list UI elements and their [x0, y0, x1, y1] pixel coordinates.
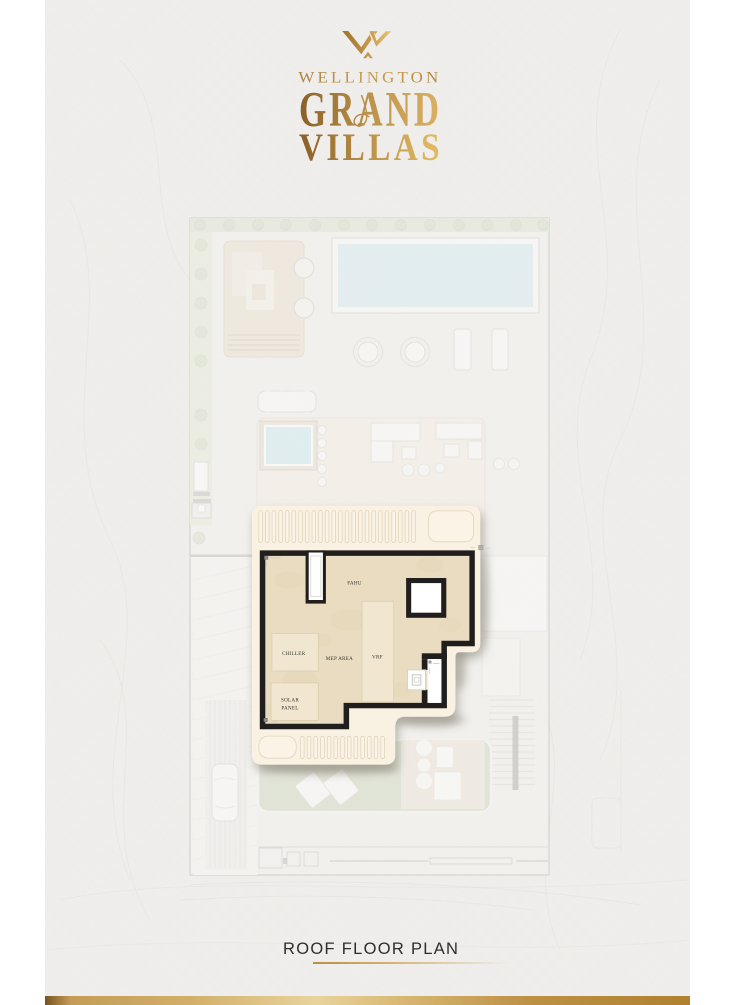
svg-text:CHILLER: CHILLER [282, 651, 306, 657]
svg-text:SOLAR: SOLAR [281, 698, 299, 704]
svg-text:VRF: VRF [372, 654, 383, 660]
svg-text:PANEL: PANEL [281, 706, 298, 712]
svg-text:VILLAS: VILLAS [299, 125, 443, 168]
svg-text:FAHU: FAHU [347, 581, 362, 587]
svg-text:MEP AREA: MEP AREA [326, 656, 353, 662]
